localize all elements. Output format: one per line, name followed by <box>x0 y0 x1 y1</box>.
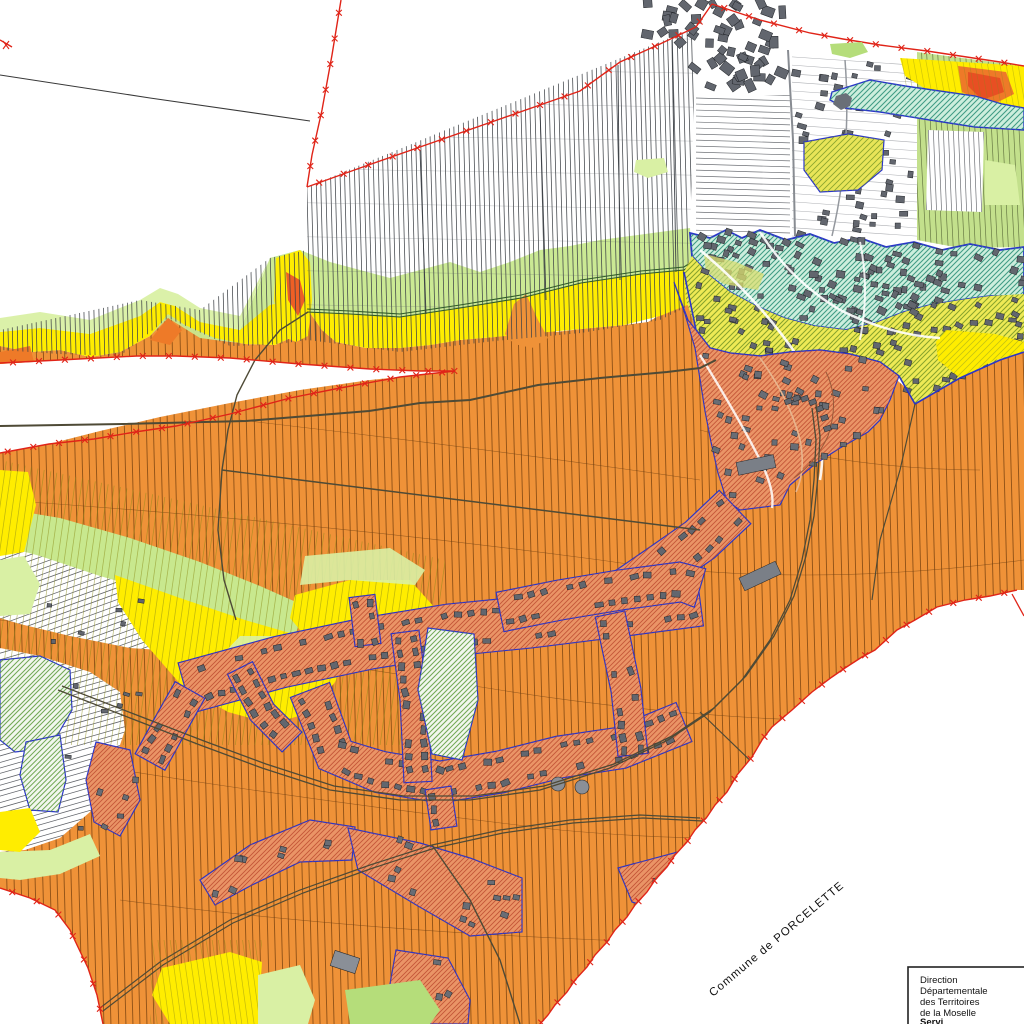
svg-text:des Territoires: des Territoires <box>920 997 980 1008</box>
svg-text:Servi: Servi <box>920 1017 943 1024</box>
svg-text:Départementale: Départementale <box>920 986 988 997</box>
svg-text:Direction: Direction <box>920 975 958 986</box>
